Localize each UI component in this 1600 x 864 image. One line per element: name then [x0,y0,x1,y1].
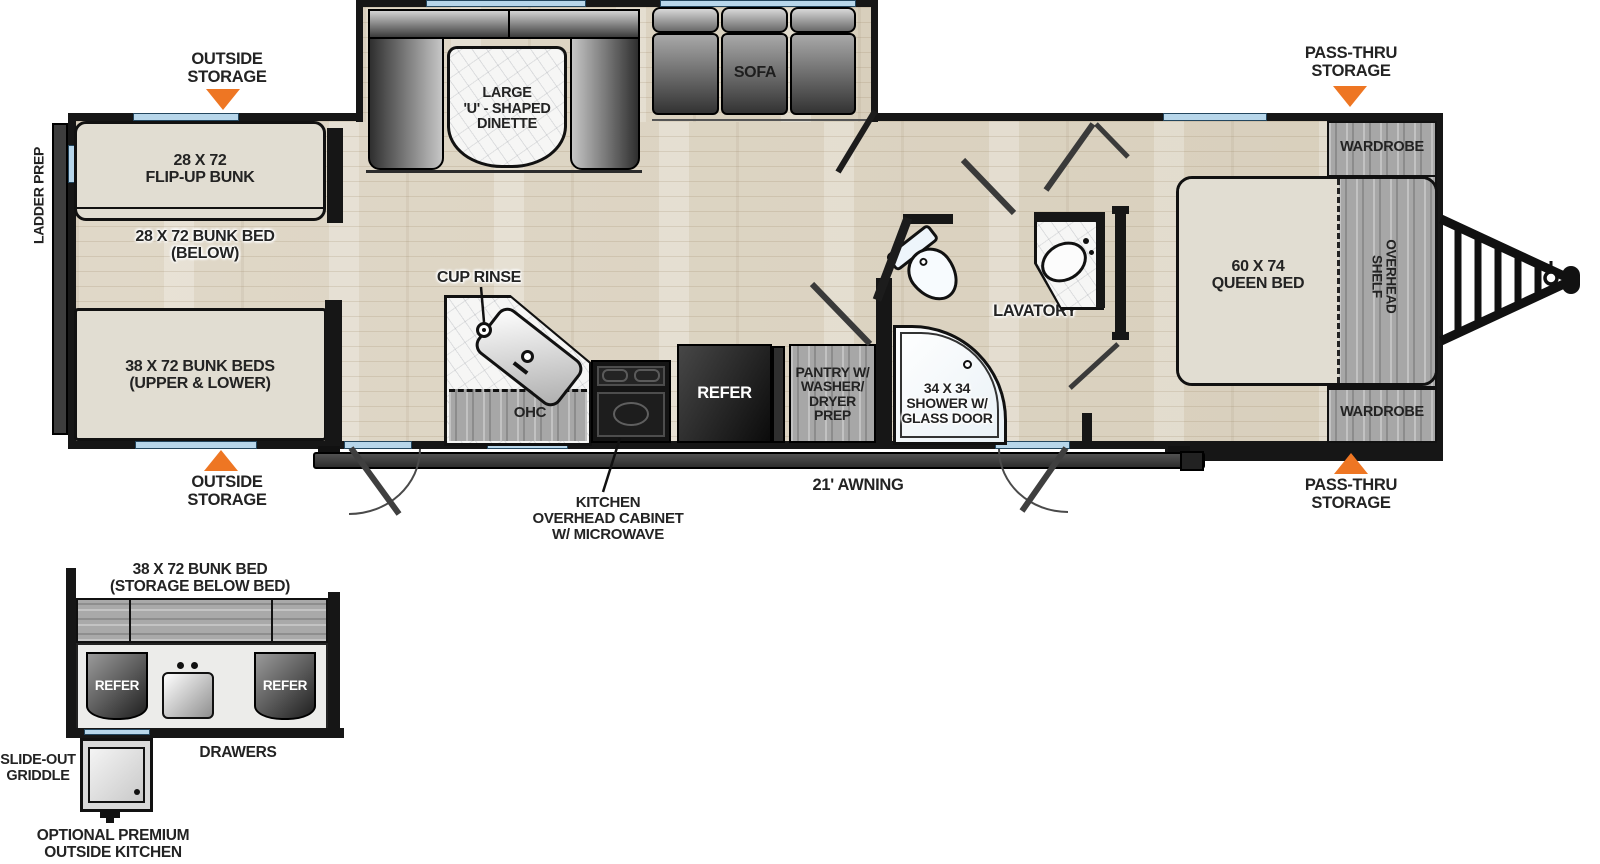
flip-up-bunk-label: 28 X 72 FLIP-UP BUNK [90,152,310,186]
awning-bar [313,452,1205,469]
ohc-label: OHC [480,405,580,421]
vanity-dot-2 [1089,250,1094,255]
wall-bedroom-partition [1115,206,1126,340]
window-top-right [1163,113,1267,121]
pass-thru-top-arrow-icon [1333,86,1367,107]
ok-optional-label: OPTIONAL PREMIUM OUTSIDE KITCHEN [23,828,203,861]
stove-oven-emblem [613,402,649,426]
wardrobe-top-label: WARDROBE [1327,140,1437,156]
ok-sink-dot-2 [191,662,198,669]
outside-storage-bottom-label: OUTSIDE STORAGE [147,474,307,509]
wall-stub-bunk-bottom [325,300,342,441]
outside-storage-top-label: OUTSIDE STORAGE [147,51,307,86]
pantry-label: PANTRY W/ WASHER/ DRYER PREP [789,365,876,422]
overhead-shelf-label: OVERHEAD SHELF [1369,231,1398,321]
slide-seam [652,119,871,121]
entry-door-opening-1 [344,441,412,449]
wall-stub-entry2 [1082,413,1092,449]
pass-thru-door-strip [1165,449,1443,461]
flip-up-bunk-hinge [77,207,323,209]
window-bottom-left [135,441,257,449]
bunk-below-label: 28 X 72 BUNK BED (BELOW) [95,228,315,262]
ladder-prep-bar [52,123,68,435]
ok-sink-dot-1 [177,662,184,669]
ok-drawers-label: DRAWERS [168,745,308,762]
wall-partition-cap-bottom [1112,332,1129,340]
wall-vanity-right [1096,212,1105,308]
hitch [1441,219,1580,341]
bunk-beds-label: 38 X 72 BUNK BEDS (UPPER & LOWER) [90,358,310,392]
ok-refer-left-label: REFER [95,679,139,693]
ok-refer-right-label: REFER [263,679,307,693]
ok-bunk-divider-1 [129,600,131,641]
window-slide-2 [660,0,856,7]
outside-kitchen-title: 38 X 72 BUNK BED (STORAGE BELOW BED) [90,562,310,595]
pass-thru-top-label: PASS-THRU STORAGE [1271,45,1431,80]
ok-griddle-dot [134,789,140,795]
entry-door-1-arc [349,449,421,515]
pass-thru-bottom-arrow-icon [1334,453,1368,474]
vanity-dot-1 [1083,238,1089,244]
queen-bed-label: 60 X 74 QUEEN BED [1178,258,1338,292]
wall-vanity-top [1034,212,1104,222]
refer-label: REFER [697,385,751,403]
dinette-bench-top [368,9,640,39]
ok-griddle-label: SLIDE-OUT GRIDDLE [0,753,76,784]
ok-bunk-divider-2 [271,600,273,641]
dinette-label: LARGE 'U' - SHAPED DINETTE [447,86,567,133]
sofa-back-3 [790,7,856,33]
wall-stub-bunk-top [327,128,343,223]
sofa-back-2 [721,7,788,33]
dinette-seam [366,170,642,173]
hitch-coupler [1562,266,1580,294]
ok-sink [162,672,214,719]
wardrobe-bottom-label: WARDROBE [1327,405,1437,421]
tongue-jack-icon [1545,272,1557,284]
window-slide-1 [426,0,586,7]
rv-floorplan-canvas: LADDER PREP LARGE 'U' - SHAPED DINETTE S… [0,0,1600,864]
dinette-bench-divider [508,9,510,39]
awning-label: 21' AWNING [778,477,938,495]
ok-refer-right: REFER [254,652,316,720]
wall-partition-cap-top [1112,206,1129,214]
window-top-left [133,113,239,121]
outside-storage-top-arrow-icon [206,89,240,110]
entry-door-2-arc [998,449,1068,513]
ladder-prep-label: LADDER PREP [32,115,47,275]
refrigerator-handle [772,346,785,443]
sofa-back-1 [652,7,719,33]
shower-label: 34 X 34 SHOWER W/ GLASS DOOR [887,381,1007,426]
pass-thru-bottom-label: PASS-THRU STORAGE [1271,477,1431,512]
ok-wall-right [328,592,340,733]
faucet [521,350,534,363]
awning-end-block [1180,451,1204,471]
outside-storage-bottom-arrow-icon [204,450,238,471]
ok-griddle-tab-2 [106,818,114,823]
cup-rinse-fixture-dot [482,328,486,332]
cup-rinse-label: CUP RINSE [399,269,559,286]
stove-burner-1 [602,369,628,382]
ok-wall-left [66,568,76,733]
stove-burner-2 [634,369,660,382]
ok-bunk-face [76,598,328,643]
shower-drain [963,360,972,369]
refrigerator: REFER [677,344,772,443]
ok-refer-left: REFER [86,652,148,720]
sofa-label: SOFA [700,64,810,81]
ok-window [84,729,150,735]
kitchen-ohc-label: KITCHEN OVERHEAD CABINET W/ MICROWAVE [503,495,713,543]
